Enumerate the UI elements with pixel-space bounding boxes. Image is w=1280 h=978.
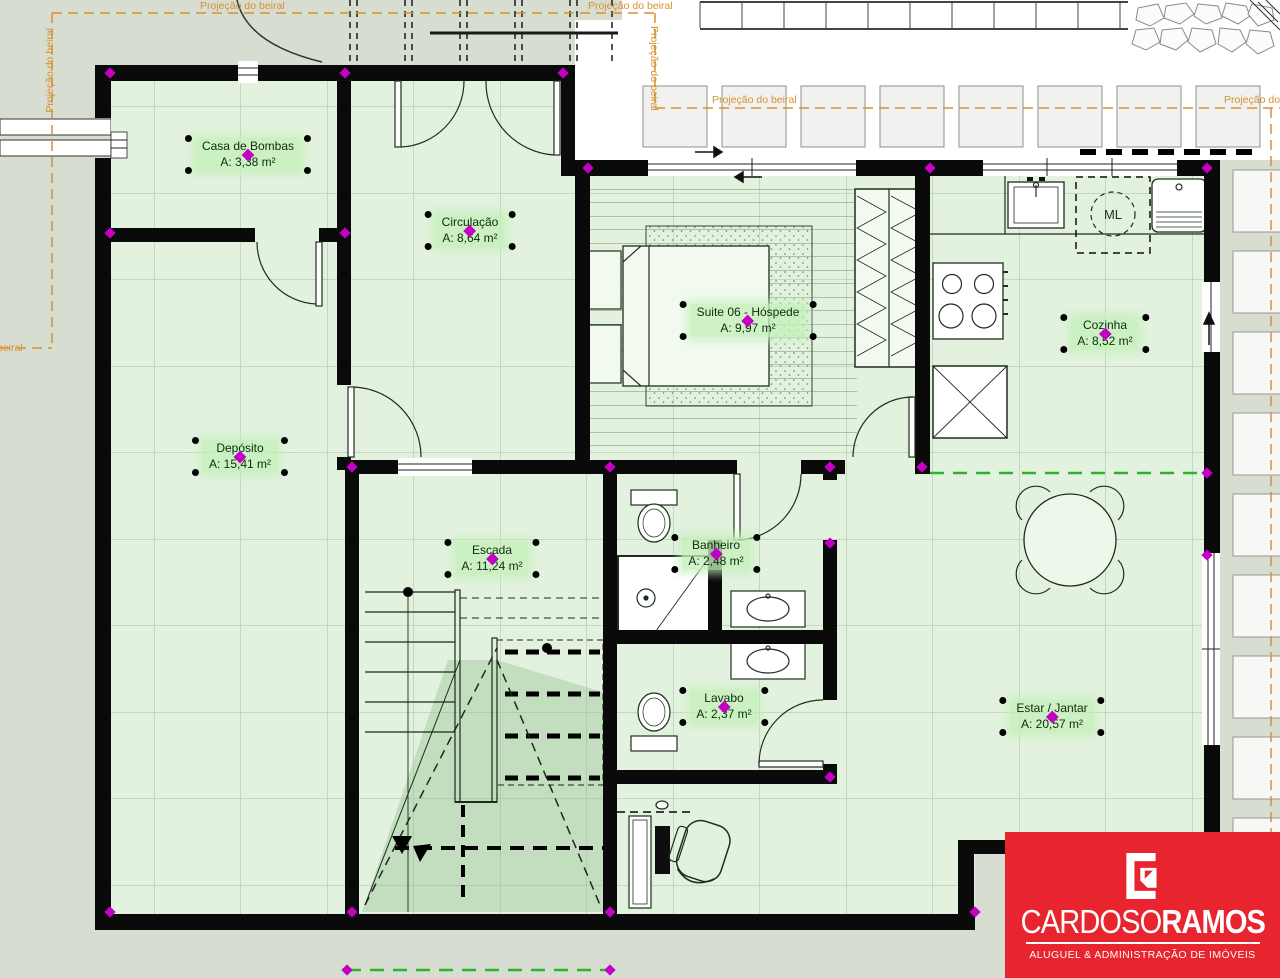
side-pavers bbox=[1233, 170, 1280, 880]
wardrobe bbox=[855, 189, 923, 367]
selection-handle[interactable] bbox=[192, 437, 199, 444]
selection-handle[interactable] bbox=[1060, 314, 1067, 321]
room-label-circulacao[interactable]: Circulação A: 8,64 m² bbox=[436, 214, 505, 247]
logo-brand-primary: CARDOSO bbox=[1020, 903, 1161, 940]
stone-patio bbox=[1128, 0, 1280, 62]
eave-label: Projeção do beiral bbox=[588, 0, 673, 12]
selection-handle[interactable] bbox=[809, 333, 816, 340]
room-label-escada[interactable]: Escada A: 11,24 m² bbox=[455, 542, 528, 575]
washbasin-lavabo bbox=[731, 643, 805, 679]
cardoso-ramos-logo-icon bbox=[1116, 849, 1170, 903]
room-label-banheiro[interactable]: Banheiro A: 2,48 m² bbox=[682, 537, 749, 570]
selection-handle[interactable] bbox=[425, 211, 432, 218]
selection-handle[interactable] bbox=[679, 687, 686, 694]
selection-handle[interactable] bbox=[508, 243, 515, 250]
room-label-lavabo[interactable]: Lavabo A: 2,37 m² bbox=[690, 690, 757, 723]
selection-handle[interactable] bbox=[508, 211, 515, 218]
washer-label: ML bbox=[1104, 207, 1122, 222]
logo-rule bbox=[1026, 942, 1260, 944]
logo-brand: CARDOSORAMOS bbox=[1020, 905, 1264, 938]
room-label-casa-de-bombas[interactable]: Casa de Bombas A: 3,38 m² bbox=[196, 138, 300, 171]
kitchen-sink bbox=[1008, 177, 1064, 228]
logo-brand-secondary: RAMOS bbox=[1161, 903, 1265, 940]
washbasin-banheiro bbox=[731, 591, 805, 627]
stove bbox=[933, 263, 1008, 339]
fridge bbox=[933, 366, 1007, 438]
selection-handle[interactable] bbox=[671, 534, 678, 541]
floor-plan-canvas: ML bbox=[0, 0, 1280, 978]
eave-label: Projeção do beiral bbox=[648, 26, 660, 111]
entry-walkway bbox=[0, 119, 111, 156]
selection-handle[interactable] bbox=[304, 135, 311, 142]
laundry-tank bbox=[1152, 179, 1206, 232]
selection-handle[interactable] bbox=[281, 437, 288, 444]
eave-label: Projeção do beiral bbox=[0, 342, 23, 354]
selection-handle[interactable] bbox=[185, 135, 192, 142]
cardoso-ramos-logo: CARDOSORAMOS ALUGUEL & ADMINISTRAÇÃO DE … bbox=[1005, 832, 1280, 978]
logo-tagline: ALUGUEL & ADMINISTRAÇÃO DE IMÓVEIS bbox=[1029, 949, 1255, 961]
eave-label: Projeção do beiral bbox=[44, 28, 56, 113]
room-label-deposito[interactable]: Depósito A: 15,41 m² bbox=[203, 440, 277, 473]
eave-label: Projeção do beiral bbox=[712, 94, 797, 106]
selection-handle[interactable] bbox=[680, 301, 687, 308]
selection-handle[interactable] bbox=[809, 301, 816, 308]
room-label-cozinha[interactable]: Cozinha A: 8,52 m² bbox=[1071, 317, 1138, 350]
selection-handle[interactable] bbox=[444, 539, 451, 546]
room-label-estar-jantar[interactable]: Estar / Jantar A: 20,57 m² bbox=[1010, 700, 1093, 733]
eave-label: Projeção do beiral bbox=[1224, 94, 1280, 106]
eave-label: Projeção do beiral bbox=[200, 0, 285, 12]
room-label-suite-06[interactable]: Suite 06 - Hóspede A: 9,97 m² bbox=[691, 304, 806, 337]
selection-handle[interactable] bbox=[999, 697, 1006, 704]
